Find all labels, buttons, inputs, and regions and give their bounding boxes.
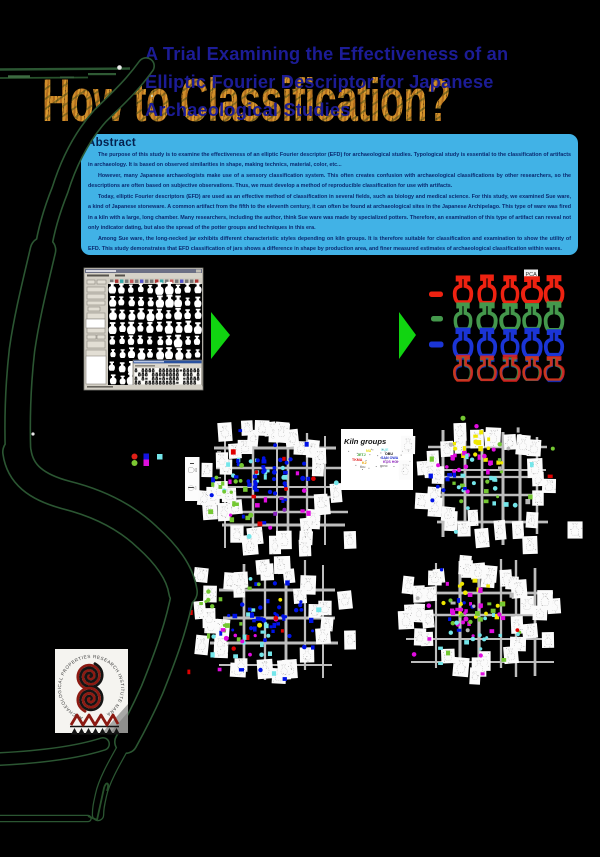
svg-text:JETJ: JETJ — [357, 453, 366, 457]
svg-text:Kiln groups: Kiln groups — [344, 437, 386, 446]
svg-text:NU: NU — [366, 449, 372, 453]
svg-text:tku: tku — [360, 465, 365, 469]
